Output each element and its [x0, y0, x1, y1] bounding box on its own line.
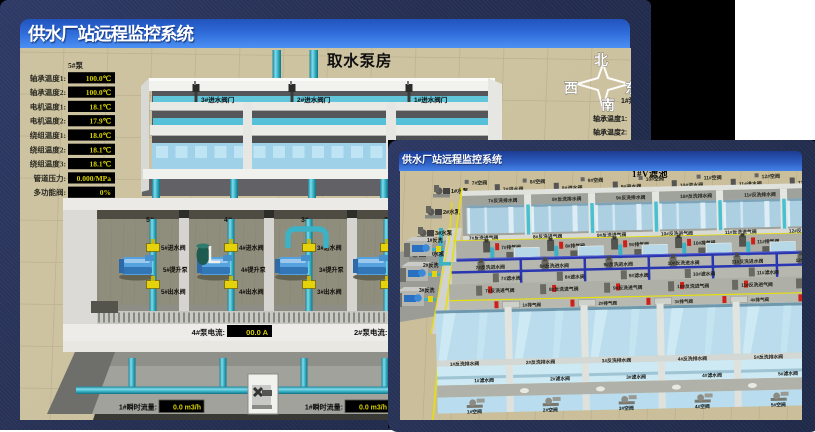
- svg-text:1#瞬时流量:: 1#瞬时流量:: [119, 403, 157, 412]
- svg-text:轴承温度2:: 轴承温度2:: [593, 128, 627, 137]
- svg-text:0.0 m3/h: 0.0 m3/h: [359, 405, 387, 412]
- svg-text:2#泵电流:: 2#泵电流:: [354, 327, 387, 337]
- svg-text:3#进水阀门: 3#进水阀门: [201, 95, 235, 104]
- svg-text:西: 西: [564, 80, 578, 96]
- svg-text:0.0 m3/h: 0.0 m3/h: [173, 405, 201, 412]
- svg-text:7#空阀: 7#空阀: [472, 179, 488, 186]
- svg-text:1#瞬时流量:: 1#瞬时流量:: [305, 403, 343, 412]
- svg-text:1#泵: 1#泵: [621, 96, 631, 105]
- svg-text:4#泵电流:: 4#泵电流:: [192, 327, 225, 337]
- svg-text:5#提升泵: 5#提升泵: [163, 266, 189, 274]
- svg-text:1#反洗: 1#反洗: [427, 237, 443, 244]
- svg-text:100.0℃: 100.0℃: [86, 88, 112, 97]
- svg-text:5#泵: 5#泵: [68, 61, 84, 70]
- svg-text:18.1℃: 18.1℃: [89, 160, 111, 169]
- svg-text:5#出水阀: 5#出水阀: [161, 288, 186, 296]
- svg-text:3#出水阀: 3#出水阀: [317, 288, 342, 296]
- svg-text:绕组温度2:: 绕组温度2:: [30, 144, 66, 154]
- svg-text:轴承温度2:: 轴承温度2:: [30, 87, 66, 97]
- svg-text:5#进水阀: 5#进水阀: [161, 244, 186, 252]
- svg-text:电机温度1:: 电机温度1:: [30, 101, 66, 111]
- svg-text:1#进水阀门: 1#进水阀门: [414, 95, 448, 104]
- svg-text:18.0℃: 18.0℃: [89, 131, 111, 140]
- svg-text:3#进水阀: 3#进水阀: [317, 244, 342, 252]
- svg-text:17.9℃: 17.9℃: [89, 117, 111, 126]
- svg-text:8#空阀: 8#空阀: [530, 178, 546, 185]
- svg-text:北: 北: [594, 52, 608, 68]
- svg-text:4#进水阀: 4#进水阀: [239, 244, 264, 252]
- svg-text:9#空阀: 9#空阀: [588, 177, 604, 184]
- svg-text:18.1℃: 18.1℃: [89, 145, 111, 154]
- svg-text:2#反洗: 2#反洗: [423, 262, 439, 269]
- svg-text:12#空阀: 12#空阀: [762, 173, 780, 180]
- svg-text:轴承温度1:: 轴承温度1:: [30, 73, 66, 83]
- svg-text:管道压力:: 管道压力:: [34, 173, 67, 183]
- svg-text:南: 南: [601, 97, 615, 113]
- svg-text:11#空阀: 11#空阀: [704, 174, 722, 181]
- svg-text:0%: 0%: [100, 188, 111, 197]
- svg-text:0.000/MPa: 0.000/MPa: [77, 174, 112, 183]
- svg-text:10#空阀: 10#空阀: [646, 175, 664, 182]
- svg-text:轴承温度1:: 轴承温度1:: [593, 114, 627, 123]
- svg-text:18.1℃: 18.1℃: [89, 102, 111, 111]
- svg-text:3#提升泵: 3#提升泵: [319, 266, 345, 274]
- svg-text:00.0 A: 00.0 A: [246, 328, 268, 337]
- svg-text:绕组温度1:: 绕组温度1:: [30, 130, 66, 140]
- svg-text:3#水泵: 3#水泵: [435, 229, 453, 237]
- svg-text:电机温度2:: 电机温度2:: [30, 116, 66, 126]
- svg-text:3#反洗: 3#反洗: [419, 287, 435, 294]
- svg-text:取水泵房: 取水泵房: [327, 51, 392, 70]
- svg-text:多功能阀:: 多功能阀:: [34, 187, 67, 197]
- svg-text:绕组温度3:: 绕组温度3:: [30, 159, 66, 169]
- svg-text:4#出水阀: 4#出水阀: [239, 288, 264, 296]
- svg-text:100.0℃: 100.0℃: [86, 74, 112, 83]
- svg-text:4#提升泵: 4#提升泵: [241, 266, 267, 274]
- svg-text:东: 东: [625, 80, 631, 96]
- svg-text:2#进水阀门: 2#进水阀门: [297, 95, 331, 104]
